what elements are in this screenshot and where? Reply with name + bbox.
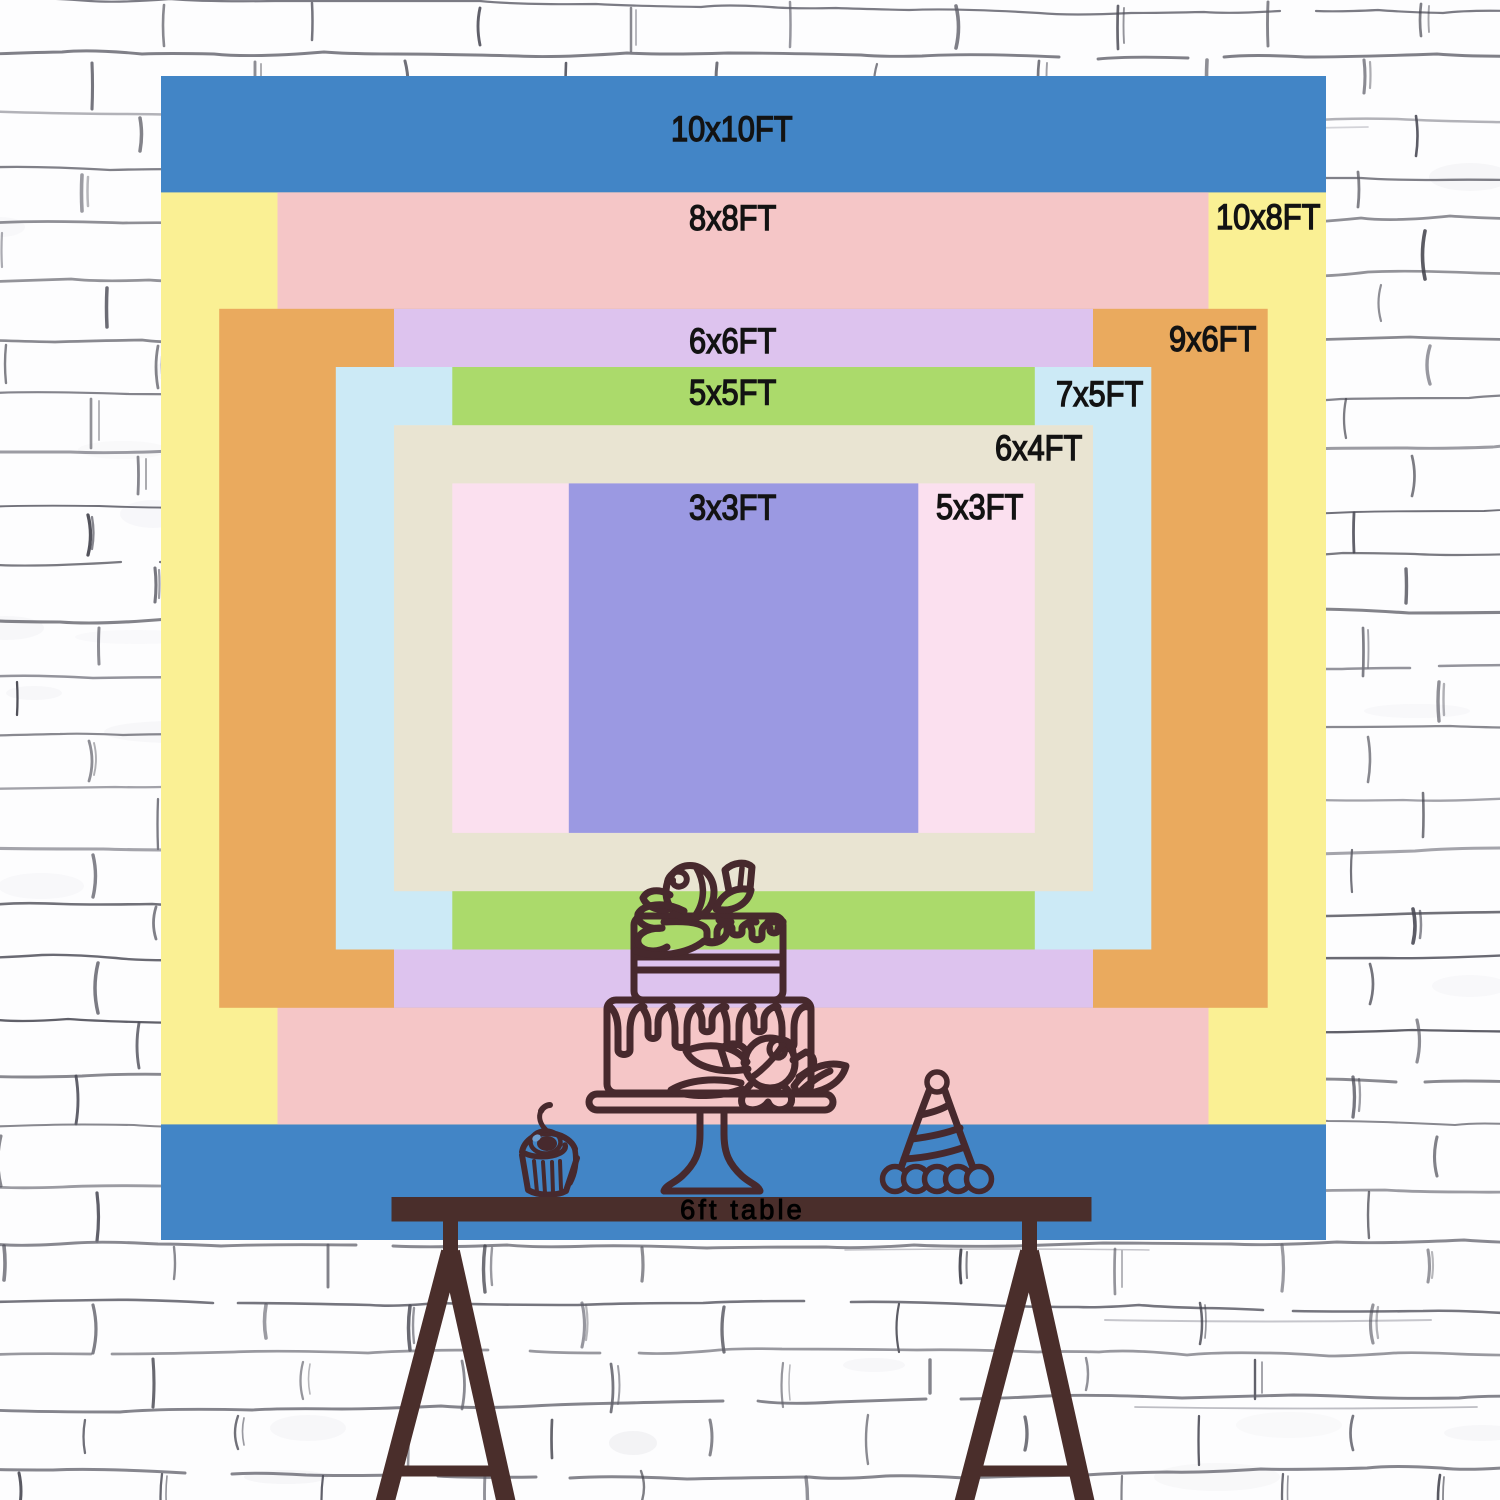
- svg-text:6ft table: 6ft table: [680, 1194, 805, 1225]
- svg-text:6x4FT: 6x4FT: [995, 428, 1082, 467]
- svg-text:9x6FT: 9x6FT: [1169, 319, 1256, 358]
- svg-text:3x3FT: 3x3FT: [689, 488, 776, 527]
- svg-text:5x5FT: 5x5FT: [689, 373, 776, 412]
- svg-text:7x5FT: 7x5FT: [1056, 374, 1143, 413]
- svg-text:10x10FT: 10x10FT: [671, 109, 792, 148]
- svg-text:5x3FT: 5x3FT: [936, 487, 1023, 526]
- svg-text:6x6FT: 6x6FT: [689, 321, 776, 360]
- svg-text:10x8FT: 10x8FT: [1216, 197, 1320, 236]
- svg-text:8x8FT: 8x8FT: [689, 198, 776, 237]
